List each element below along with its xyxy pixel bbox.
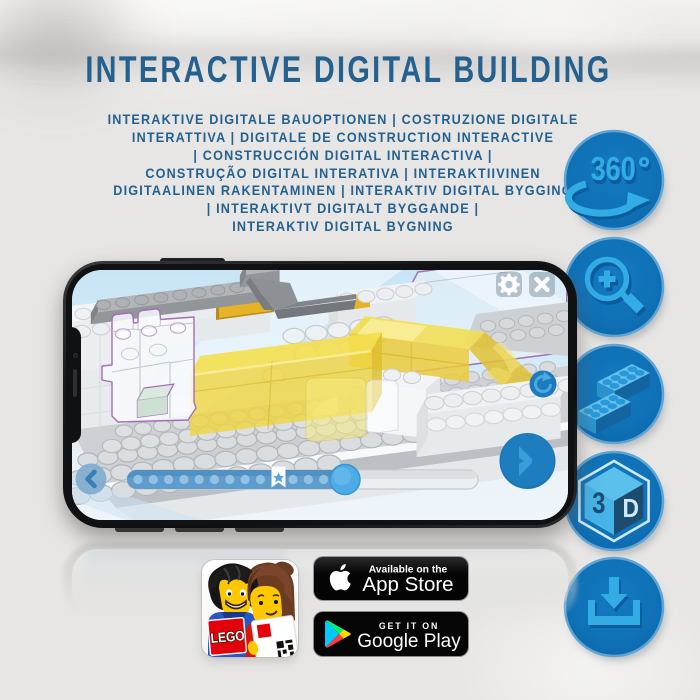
- svg-text:Google Play: Google Play: [357, 631, 461, 652]
- svg-text:3: 3: [592, 485, 605, 519]
- svg-text:D: D: [622, 495, 639, 524]
- svg-text:App Store: App Store: [362, 573, 453, 596]
- svg-text:GET IT ON: GET IT ON: [379, 621, 439, 631]
- svg-text:LEGO: LEGO: [210, 627, 245, 646]
- svg-text:360: 360: [591, 152, 636, 188]
